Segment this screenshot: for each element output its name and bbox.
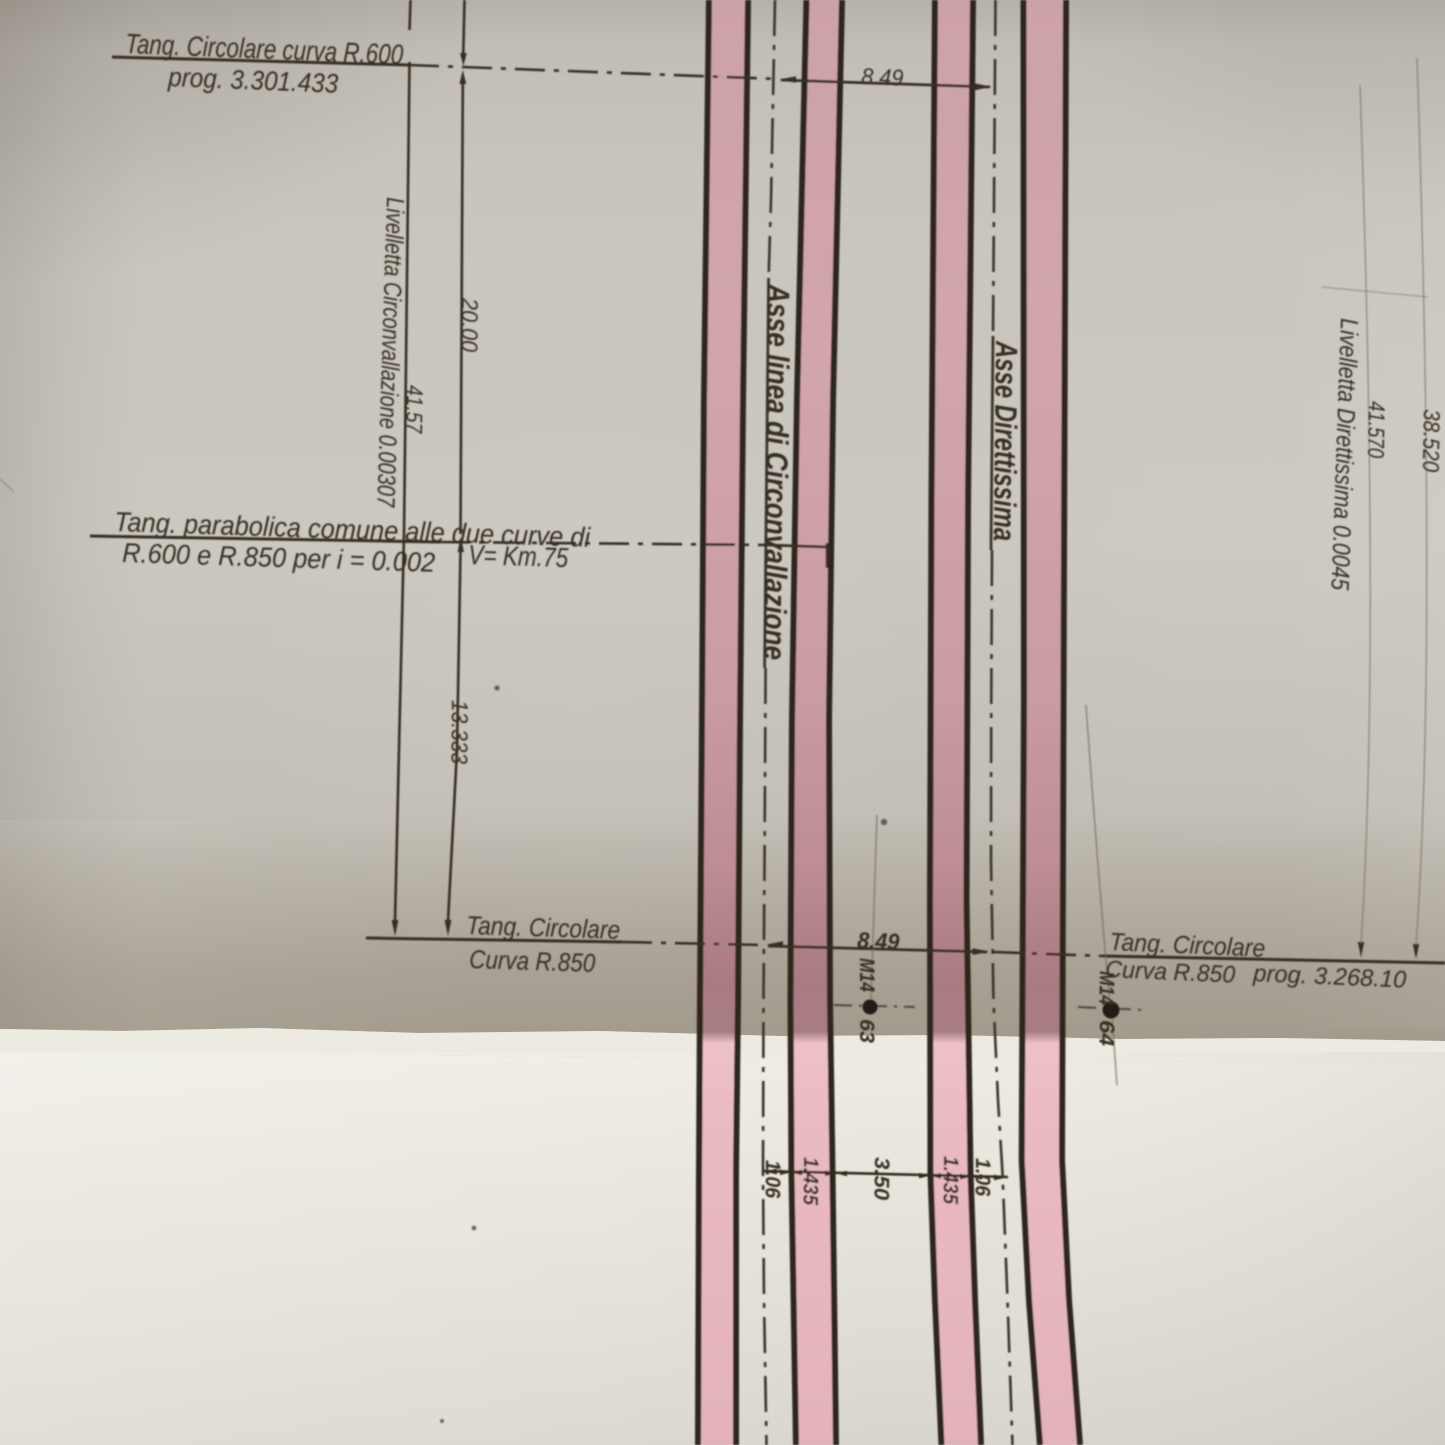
svg-text:M14: M14 bbox=[1094, 971, 1118, 1006]
svg-text:Curva R.850: Curva R.850 bbox=[1105, 956, 1237, 989]
svg-text:64: 64 bbox=[1095, 1020, 1118, 1047]
svg-text:20.00: 20.00 bbox=[457, 297, 483, 352]
svg-text:Asse linea di Circonvallazione: Asse linea di Circonvallazione bbox=[757, 283, 796, 660]
svg-text:8.49: 8.49 bbox=[857, 927, 900, 955]
svg-text:1.435: 1.435 bbox=[798, 1157, 822, 1206]
svg-text:1.06: 1.06 bbox=[761, 1160, 784, 1199]
svg-text:1.06: 1.06 bbox=[971, 1158, 994, 1197]
svg-text:1.435: 1.435 bbox=[938, 1156, 962, 1205]
svg-text:13.333: 13.333 bbox=[446, 700, 473, 764]
svg-text:Tang. Circolare: Tang. Circolare bbox=[466, 910, 621, 945]
svg-text:Curva R.850: Curva R.850 bbox=[469, 944, 596, 978]
svg-text:M14: M14 bbox=[855, 958, 878, 992]
svg-text:3.50: 3.50 bbox=[870, 1157, 893, 1201]
svg-text:63: 63 bbox=[855, 1019, 878, 1043]
svg-text:Asse Direttissima: Asse Direttissima bbox=[987, 340, 1024, 541]
svg-text:41.57: 41.57 bbox=[401, 385, 428, 434]
svg-text:V= Km.75: V= Km.75 bbox=[468, 539, 569, 573]
svg-text:38.520: 38.520 bbox=[1418, 409, 1445, 473]
svg-text:8.49: 8.49 bbox=[861, 63, 904, 91]
svg-text:41.570: 41.570 bbox=[1363, 401, 1390, 459]
